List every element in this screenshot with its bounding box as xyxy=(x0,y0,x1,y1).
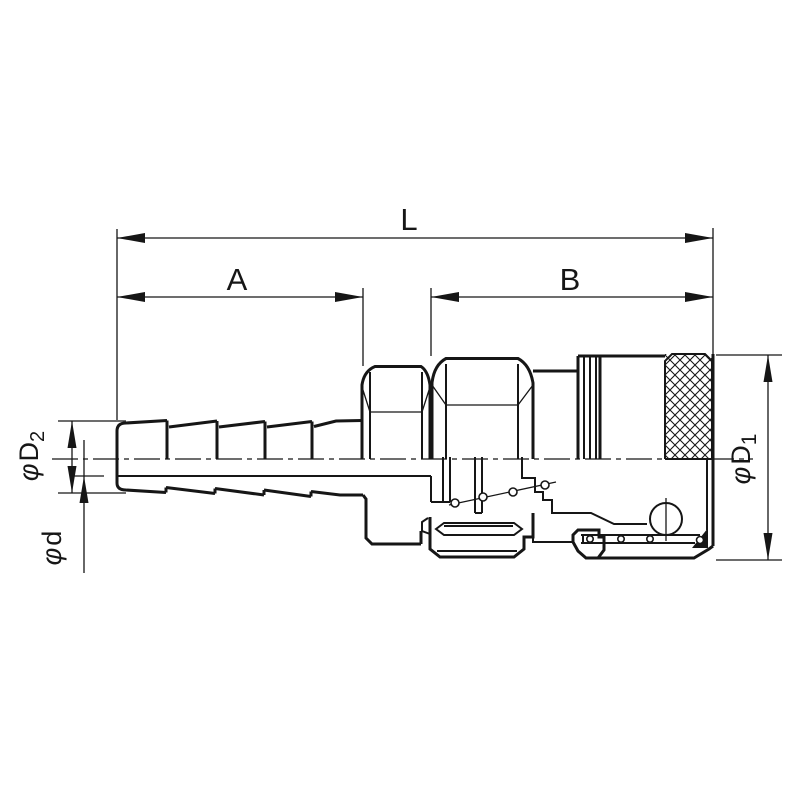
spring-coil-3 xyxy=(647,536,653,542)
hex-nut-small xyxy=(362,367,430,460)
hex-small-outline xyxy=(362,367,430,460)
technical-drawing-canvas: L A B φD2 φd φD1 xyxy=(0,0,800,800)
arrowhead-down xyxy=(68,466,77,493)
spring-coil-1 xyxy=(587,536,593,542)
dim-phi-d: φd xyxy=(37,440,104,573)
collar-groove-lines xyxy=(584,356,596,459)
dim-label-B: B xyxy=(560,262,581,297)
ball-track-line xyxy=(449,482,556,505)
dim-B: B xyxy=(431,262,713,356)
sleeve-to-cap-line xyxy=(533,537,573,542)
hex-nut-large xyxy=(432,359,533,460)
phi-symbol: φ xyxy=(726,467,756,485)
arrowhead-up xyxy=(80,476,89,503)
hex-small-face-edges xyxy=(370,372,422,459)
dim-L: L xyxy=(117,202,713,420)
arrowhead-left xyxy=(117,233,145,243)
arrowhead-up xyxy=(764,355,773,382)
arrowhead-up xyxy=(68,421,77,448)
dim-phi-D2: φD2 xyxy=(14,421,126,493)
lock-ball-4 xyxy=(541,481,549,489)
arrowhead-right xyxy=(685,292,713,302)
phi-symbol: φ xyxy=(37,548,67,566)
arrowhead-left xyxy=(117,292,145,302)
lock-ball-2 xyxy=(479,493,487,501)
dim-label-A: A xyxy=(227,262,248,297)
seal-strip xyxy=(436,523,522,535)
phi-symbol: φ xyxy=(14,464,44,482)
dim-letter: D xyxy=(14,442,44,462)
lock-ball-3 xyxy=(509,488,517,496)
dim-label-phi-D2: φD2 xyxy=(14,431,49,481)
spring-coil-2 xyxy=(618,536,624,542)
valve-wall-2 xyxy=(475,457,482,513)
barb-teeth-top xyxy=(117,421,362,460)
dim-subscript: 1 xyxy=(738,434,761,446)
hose-barb-outline xyxy=(117,421,443,545)
barb-teeth-bottom xyxy=(126,488,363,497)
hex-large-face-edges xyxy=(446,364,518,459)
barb-neck-section xyxy=(363,495,421,544)
dim-letter: D xyxy=(726,445,756,465)
valve-wall-1 xyxy=(443,457,450,502)
arrowhead-right xyxy=(685,233,713,243)
retainer-ball xyxy=(697,537,704,544)
dim-phi-D1: φD1 xyxy=(716,355,782,560)
socket-body-top xyxy=(533,354,713,546)
knurl-band-pattern xyxy=(665,354,712,459)
dim-label-phi-D1: φD1 xyxy=(726,434,761,485)
dim-subscript: 2 xyxy=(27,431,49,442)
dim-label-L: L xyxy=(400,202,417,237)
dim-label-phi-d: φd xyxy=(37,531,67,566)
arrowhead-left xyxy=(431,292,459,302)
dim-letter: d xyxy=(37,531,67,546)
arrowhead-down xyxy=(764,533,773,560)
barb-tip-face xyxy=(117,431,126,490)
dim-A: A xyxy=(117,262,363,366)
coupling-drawing: L A B φD2 φd φD1 xyxy=(0,0,800,800)
hex-small-chamfer-lines xyxy=(362,387,430,412)
valve-seat-steps xyxy=(522,457,647,524)
lock-ball-1 xyxy=(451,499,459,507)
arrowhead-right xyxy=(335,292,363,302)
